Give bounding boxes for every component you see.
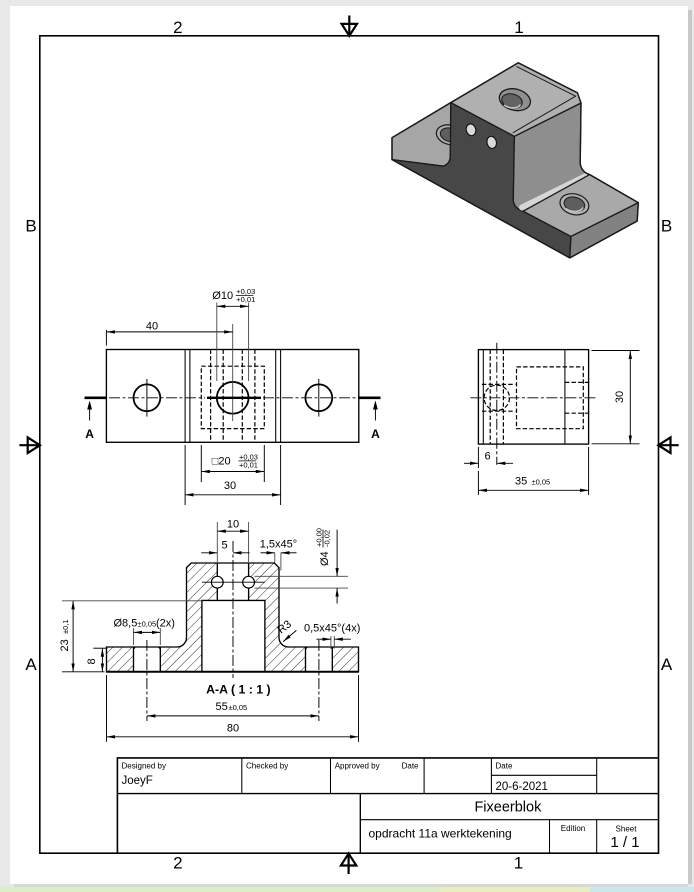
svg-text:55: 55 bbox=[216, 701, 228, 713]
svg-text:±0,05: ±0,05 bbox=[229, 703, 248, 712]
svg-text:JoeyF: JoeyF bbox=[122, 775, 153, 787]
svg-text:1: 1 bbox=[514, 854, 523, 873]
svg-text:40: 40 bbox=[146, 321, 158, 333]
svg-text:35: 35 bbox=[515, 476, 527, 488]
svg-text:+0,01: +0,01 bbox=[239, 460, 258, 469]
svg-text:Date: Date bbox=[496, 761, 513, 770]
svg-text:B: B bbox=[25, 217, 36, 236]
svg-text:30: 30 bbox=[224, 480, 236, 492]
svg-text:opdracht 11a werktekening: opdracht 11a werktekening bbox=[369, 827, 512, 841]
svg-text:2: 2 bbox=[173, 18, 182, 37]
svg-text:(2x): (2x) bbox=[156, 618, 175, 630]
svg-text:Sheet: Sheet bbox=[616, 825, 638, 834]
svg-text:A: A bbox=[371, 427, 380, 441]
svg-text:1,5x45°: 1,5x45° bbox=[260, 539, 297, 551]
svg-text:0,5x45°(4x): 0,5x45°(4x) bbox=[304, 623, 360, 635]
svg-text:±0,1: ±0,1 bbox=[61, 619, 70, 634]
svg-text:Ø4: Ø4 bbox=[319, 551, 331, 566]
svg-text:Approved by: Approved by bbox=[335, 761, 380, 770]
svg-text:±0,05: ±0,05 bbox=[532, 478, 551, 487]
svg-text:-0,02: -0,02 bbox=[323, 530, 332, 547]
svg-text:10: 10 bbox=[227, 518, 239, 530]
svg-text:Ø10: Ø10 bbox=[212, 290, 233, 302]
svg-text:80: 80 bbox=[227, 723, 239, 735]
svg-text:Designed by: Designed by bbox=[122, 761, 166, 770]
svg-text:±0,05: ±0,05 bbox=[138, 620, 157, 629]
svg-text:1: 1 bbox=[514, 18, 523, 37]
svg-text:30: 30 bbox=[614, 391, 626, 403]
svg-text:5: 5 bbox=[221, 540, 227, 552]
svg-text:20-6-2021: 20-6-2021 bbox=[496, 781, 548, 793]
svg-text:23: 23 bbox=[59, 639, 71, 651]
svg-text:B: B bbox=[661, 217, 672, 236]
svg-text:Checked by: Checked by bbox=[246, 761, 288, 770]
svg-text:+0,01: +0,01 bbox=[236, 295, 255, 304]
svg-text:Date: Date bbox=[402, 761, 419, 770]
svg-text:6: 6 bbox=[484, 451, 490, 463]
svg-text:A: A bbox=[661, 655, 673, 674]
svg-text:1 / 1: 1 / 1 bbox=[610, 834, 639, 851]
svg-text:2: 2 bbox=[173, 854, 182, 873]
svg-text:□20: □20 bbox=[212, 456, 231, 468]
svg-text:Ø8,5: Ø8,5 bbox=[114, 618, 138, 630]
svg-text:Edition: Edition bbox=[561, 824, 585, 833]
svg-text:A: A bbox=[25, 655, 37, 674]
svg-text:8: 8 bbox=[86, 658, 98, 664]
svg-text:A: A bbox=[85, 427, 94, 441]
svg-text:Fixeerblok: Fixeerblok bbox=[474, 800, 542, 816]
svg-text:A-A ( 1 : 1 ): A-A ( 1 : 1 ) bbox=[206, 683, 270, 697]
